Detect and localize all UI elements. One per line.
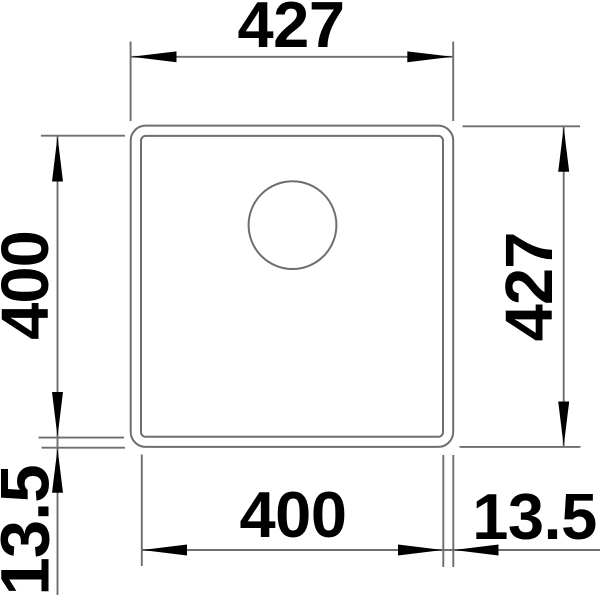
svg-text:427: 427 xyxy=(238,0,345,61)
svg-text:400: 400 xyxy=(240,478,347,551)
svg-text:427: 427 xyxy=(492,233,567,342)
svg-text:13.5: 13.5 xyxy=(472,480,597,553)
svg-text:13.5: 13.5 xyxy=(0,465,64,595)
svg-text:400: 400 xyxy=(0,231,63,340)
